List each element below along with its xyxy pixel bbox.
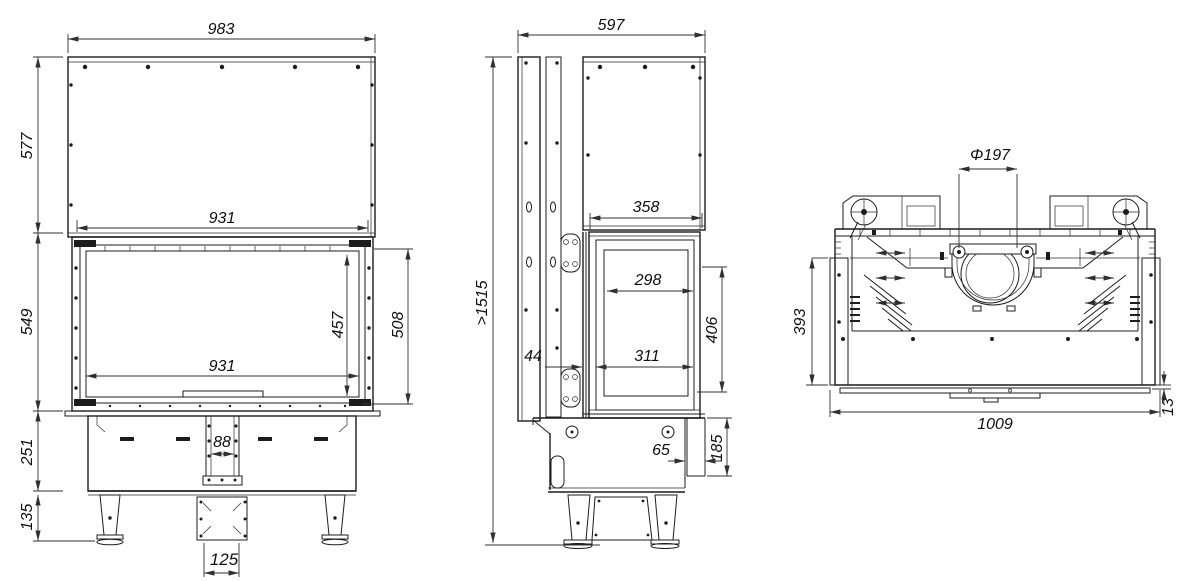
hinge-bracket-lower (561, 369, 580, 407)
dim-top-front-lip: 13 (1160, 398, 1177, 416)
dim-side-opening-depth: 311 (634, 348, 660, 365)
glass-pane (86, 251, 359, 397)
dim-side-glass-depth: 298 (634, 272, 662, 289)
bottom-duct (197, 497, 247, 540)
dim-front-overall-width: 983 (208, 21, 235, 38)
side-view: 597 >1515 358 298 44 311 406 65 (474, 17, 732, 549)
dim-front-body-height: 549 (19, 309, 36, 336)
top-vent-slots (850, 253, 1140, 322)
dim-side-overall-depth: 597 (598, 17, 626, 34)
side-back-panels (518, 57, 580, 421)
dim-side-plinth-height: 185 (709, 435, 726, 462)
top-front-edge (840, 337, 1150, 402)
fireplace-insert-drawing: 983 577 931 549 931 457 508 251 88 (0, 0, 1192, 581)
dim-front-glass-width: 931 (209, 358, 236, 375)
dim-top-body-depth: 393 (792, 309, 809, 336)
dim-front-duct-width: 125 (210, 550, 239, 569)
top-view: Φ197 393 1009 13 (792, 147, 1177, 433)
top-flue (945, 244, 1041, 311)
side-legs (564, 495, 679, 549)
front-dimensions: 983 577 931 549 931 457 508 251 88 (19, 21, 413, 577)
side-duct (592, 497, 652, 540)
front-legs (97, 495, 348, 545)
dim-side-glass-height: 406 (704, 317, 721, 344)
dim-front-legs-height: 135 (19, 504, 36, 531)
front-base (88, 416, 356, 495)
dim-top-overall-width: 1009 (977, 416, 1013, 433)
dim-front-plinth-height: 251 (19, 439, 36, 467)
top-dimensions: Φ197 393 1009 13 (792, 147, 1177, 433)
hinge-bracket-upper (561, 234, 580, 272)
dim-front-channel-width: 88 (213, 434, 231, 451)
dim-top-flue-diameter: Φ197 (970, 147, 1011, 164)
dim-side-door-offset: 44 (524, 348, 542, 365)
dim-front-door-height: 508 (390, 312, 407, 339)
dim-side-step-depth: 65 (652, 442, 670, 459)
top-pulley-right (1050, 196, 1147, 240)
dim-front-glass-height: 457 (330, 311, 347, 339)
technical-drawing-page: 983 577 931 549 931 457 508 251 88 (0, 0, 1192, 581)
dim-side-min-height: >1515 (474, 280, 491, 325)
top-pulley-left (843, 196, 940, 240)
dim-front-opening-width: 931 (209, 210, 236, 227)
dim-side-hood-depth: 358 (633, 199, 660, 216)
side-dimensions: 597 >1515 358 298 44 311 406 65 (474, 17, 732, 545)
front-view: 983 577 931 549 931 457 508 251 88 (19, 21, 413, 577)
dim-front-hood-height: 577 (19, 132, 36, 160)
door-handle (183, 391, 263, 397)
side-door (533, 232, 705, 418)
side-base (533, 418, 705, 492)
